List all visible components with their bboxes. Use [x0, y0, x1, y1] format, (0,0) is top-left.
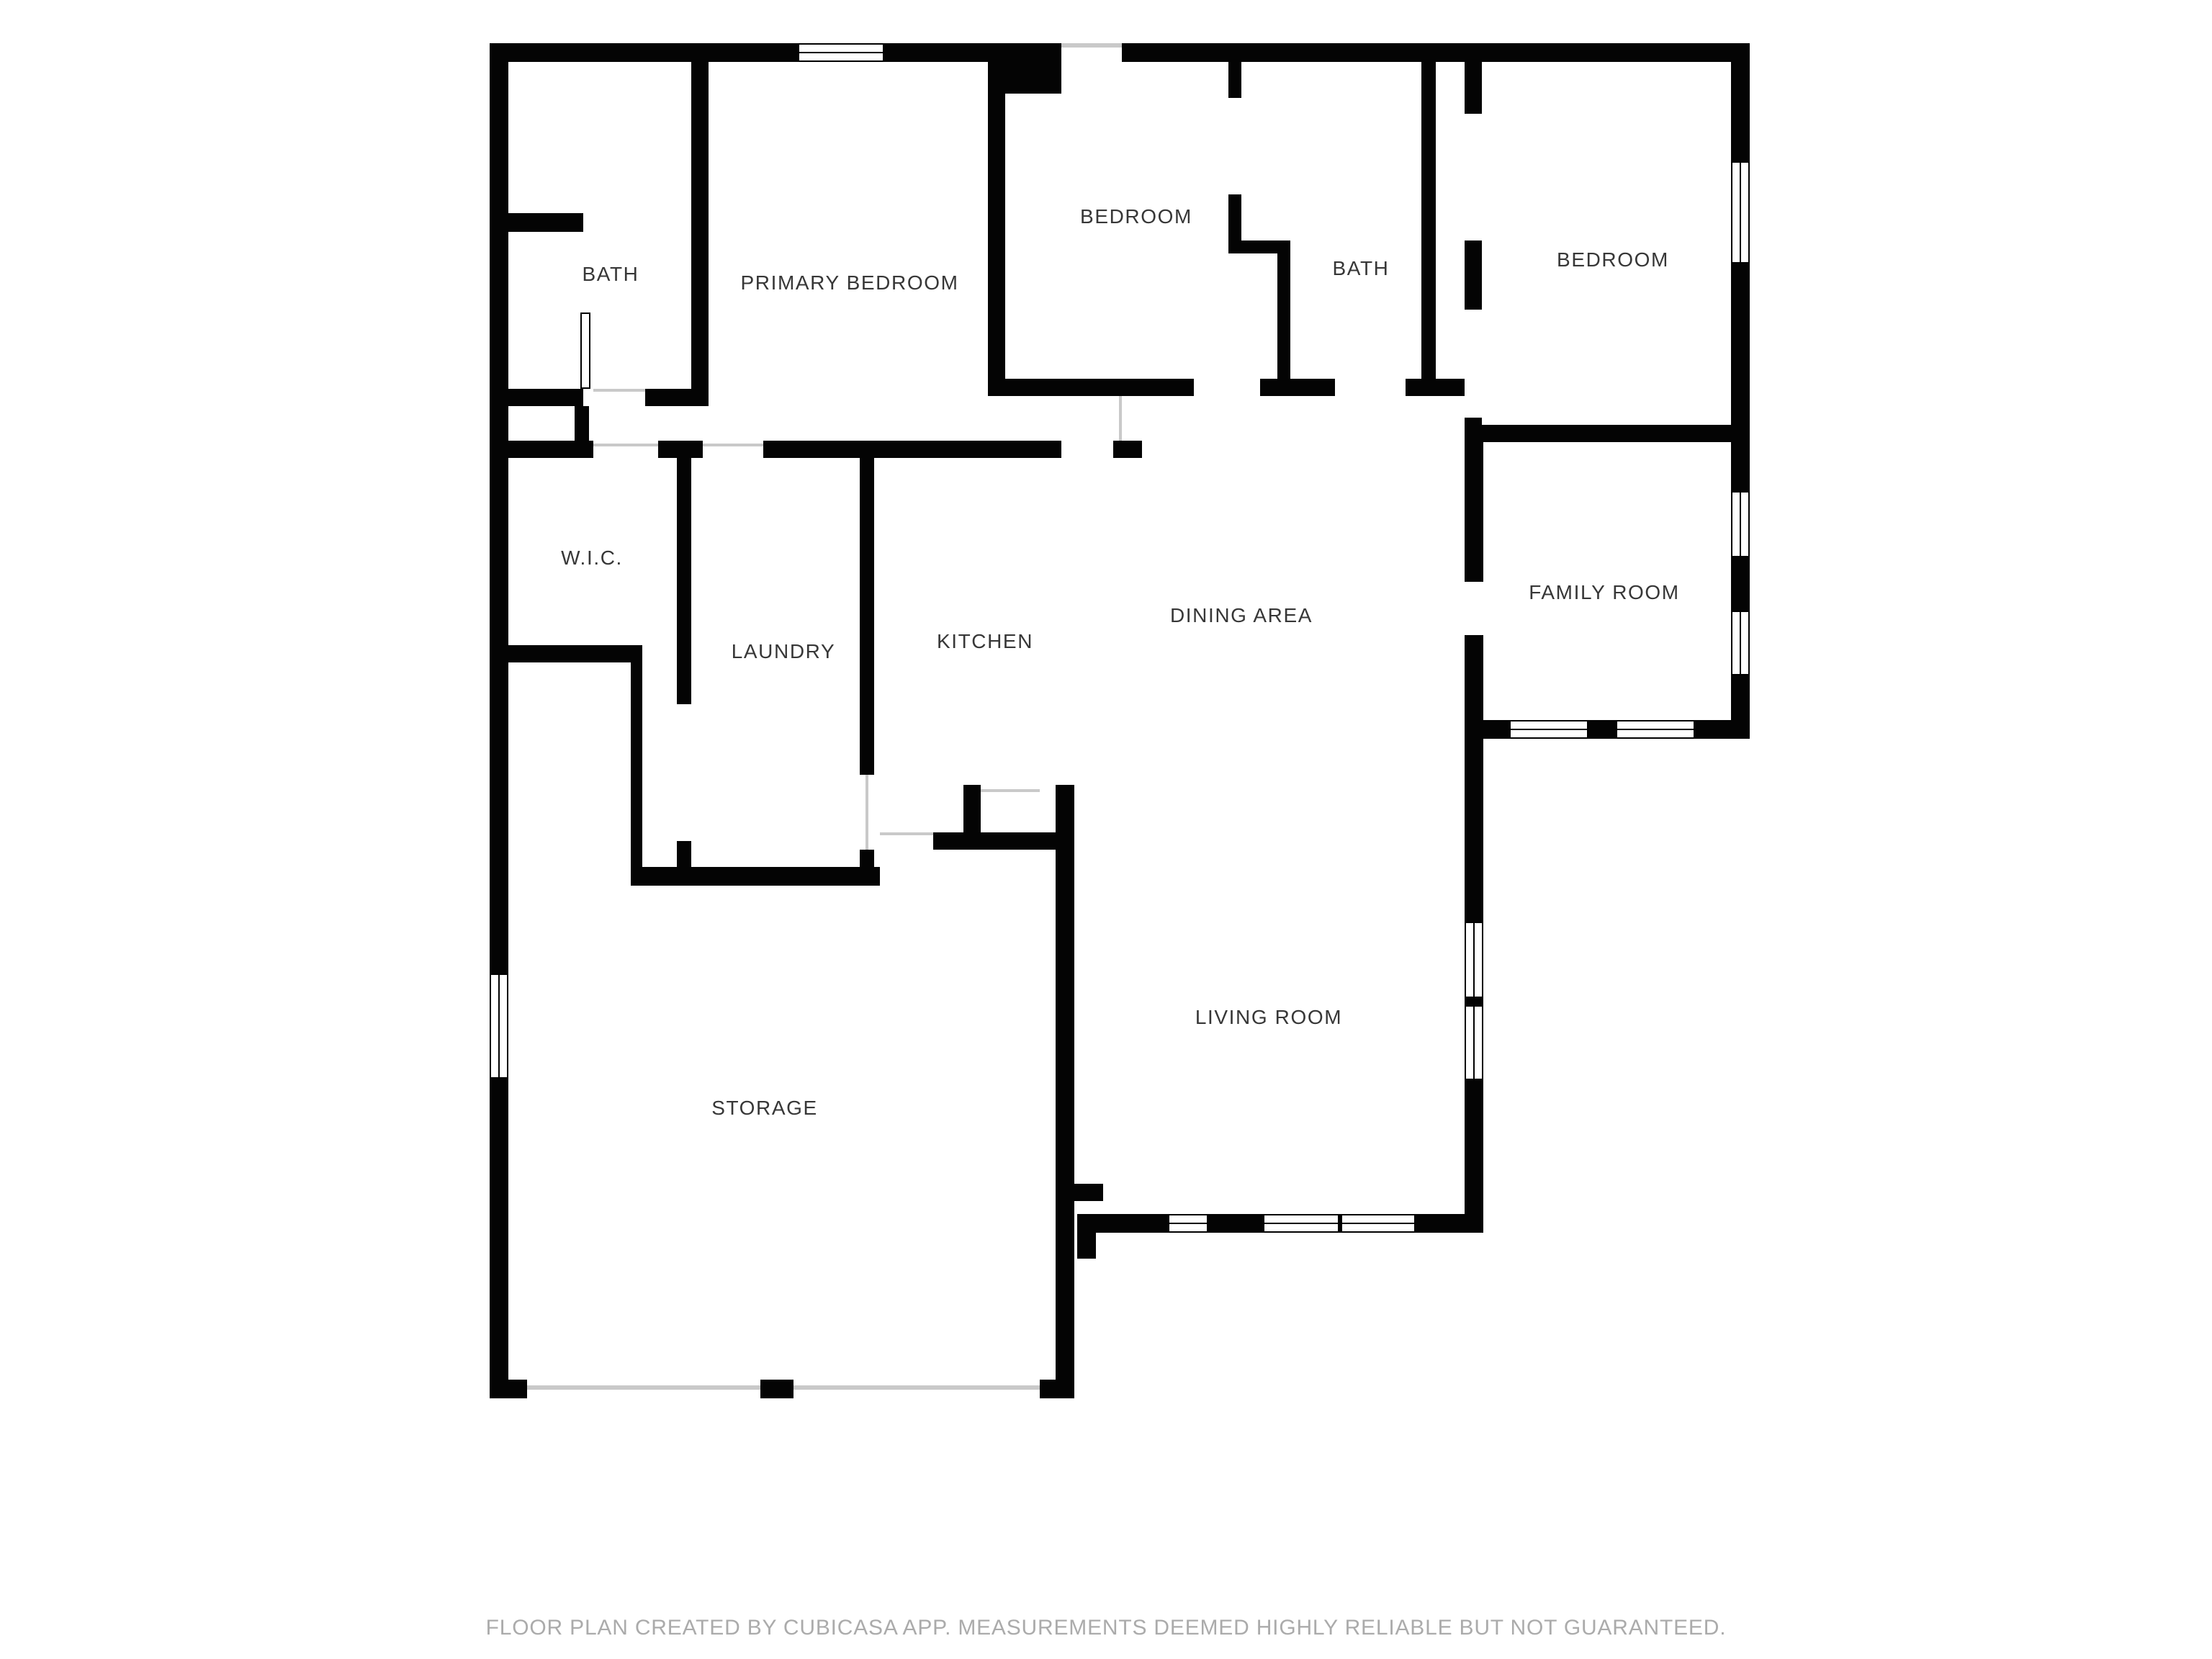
wall — [1465, 441, 1483, 582]
wall — [1465, 418, 1482, 441]
wall — [763, 441, 1061, 458]
wall — [490, 1079, 508, 1398]
wall — [658, 441, 703, 458]
wall — [490, 1380, 527, 1398]
wall — [1416, 1214, 1483, 1233]
wall — [1465, 737, 1483, 922]
wall — [1113, 441, 1142, 458]
opening-line — [1119, 396, 1122, 441]
opening-line — [593, 389, 645, 392]
window — [1731, 491, 1750, 557]
wall — [631, 662, 642, 886]
room-label-family-room: FAMILY ROOM — [1529, 580, 1680, 603]
wall — [508, 441, 593, 458]
wall — [1005, 43, 1061, 94]
wall — [691, 60, 709, 406]
wall — [1005, 379, 1194, 396]
room-label-living-room: LIVING ROOM — [1195, 1005, 1342, 1028]
wall — [860, 850, 874, 886]
wall — [933, 832, 1074, 850]
room-label-bedroom-right: BEDROOM — [1557, 248, 1669, 271]
opening-line — [981, 789, 1040, 792]
room-label-primary-bedroom: PRIMARY BEDROOM — [740, 271, 958, 294]
room-label-kitchen: KITCHEN — [937, 629, 1033, 652]
wall — [631, 867, 880, 886]
room-label-bath-upper-left: BATH — [583, 262, 639, 285]
wall — [645, 389, 709, 406]
floor-plan-page: BATHPRIMARY BEDROOMBEDROOMBATHBEDROOMW.I… — [0, 0, 2212, 1659]
window — [798, 43, 884, 62]
wall — [490, 43, 798, 62]
wall — [1077, 1233, 1096, 1259]
wall — [1208, 1214, 1263, 1233]
opening-line — [593, 444, 658, 446]
room-label-dining-area: DINING AREA — [1170, 603, 1313, 626]
wall — [1056, 785, 1074, 1398]
wall — [677, 458, 691, 704]
wall — [677, 841, 691, 867]
wall — [760, 1380, 793, 1398]
room-label-bath-middle: BATH — [1333, 256, 1390, 279]
wall — [1695, 720, 1750, 739]
window — [1616, 720, 1695, 739]
room-label-storage: STORAGE — [711, 1096, 818, 1119]
wall — [490, 62, 508, 974]
room-label-laundry: LAUNDRY — [732, 639, 836, 662]
room-label-bedroom-middle: BEDROOM — [1080, 204, 1192, 228]
wall — [1421, 60, 1436, 396]
wall — [1465, 998, 1483, 1005]
wall — [508, 389, 583, 406]
window — [1168, 1214, 1208, 1233]
footer-disclaimer: FLOOR PLAN CREATED BY CUBICASA APP. MEAS… — [0, 1616, 2212, 1640]
wall — [1482, 425, 1731, 442]
wall — [508, 213, 583, 232]
wall — [1731, 62, 1750, 161]
wall — [1074, 1184, 1103, 1201]
wall — [1277, 253, 1290, 396]
opening-line — [880, 832, 933, 835]
window — [490, 974, 508, 1079]
window — [1509, 720, 1588, 739]
window — [1731, 161, 1750, 264]
wall — [490, 645, 642, 662]
wall — [1228, 240, 1290, 253]
wall — [1260, 379, 1335, 396]
room-label-wic: W.I.C. — [561, 546, 623, 569]
wall — [963, 785, 981, 832]
floor-plan: BATHPRIMARY BEDROOMBEDROOMBATHBEDROOMW.I… — [0, 0, 2212, 1659]
wall — [1465, 635, 1483, 737]
window — [1731, 611, 1750, 675]
window — [1465, 922, 1483, 998]
wall — [1588, 720, 1616, 739]
wall — [1077, 1214, 1168, 1233]
wall — [1122, 43, 1750, 62]
wall — [575, 406, 589, 441]
wall — [1228, 60, 1241, 98]
window — [1465, 1005, 1483, 1080]
wall — [1731, 264, 1750, 491]
wall — [1731, 557, 1750, 611]
wall — [1465, 60, 1482, 114]
opening-line — [866, 775, 868, 850]
wall — [1465, 1080, 1483, 1214]
wall — [860, 441, 874, 775]
window — [1263, 1214, 1416, 1233]
opening-line — [703, 444, 763, 446]
opening-line — [1061, 43, 1122, 48]
door-leaf — [580, 313, 590, 389]
wall — [988, 60, 1005, 396]
wall — [1465, 240, 1482, 310]
